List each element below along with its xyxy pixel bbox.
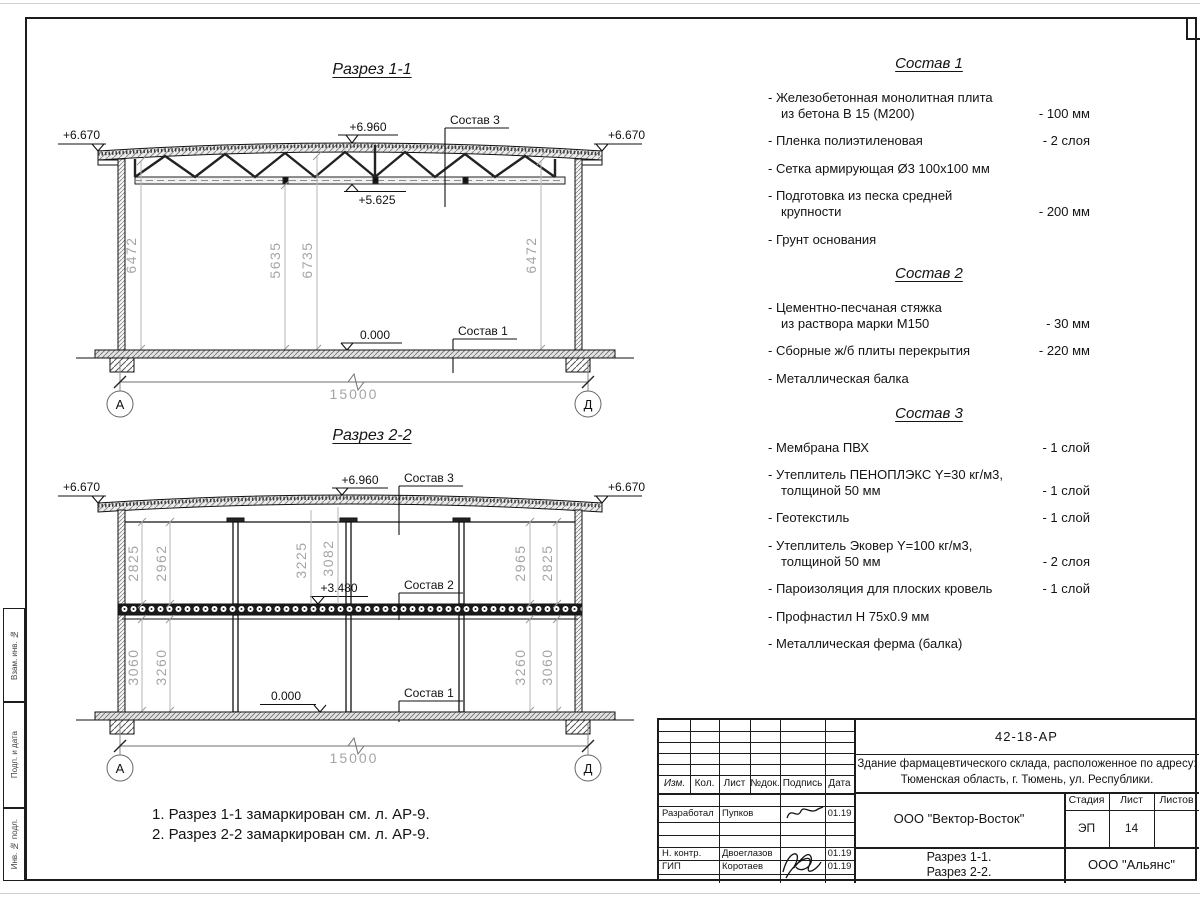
composition-item-text: - Металлическая ферма (балка) [768,636,962,652]
level-mark-icon [310,597,368,605]
composition-item: - Металлическая балка [768,371,1090,387]
composition-item: - Пароизоляция для плоских кровель - 1 с… [768,581,1090,597]
composition-item-value: - 100 мм [1039,106,1090,122]
truss-diagonals [135,152,555,177]
span-dimension: 15000 [114,722,594,766]
axis-bubble-left: А [116,761,125,776]
note-line: 1. Разрез 1-1 замаркирован см. л. АР-9. [152,805,430,825]
tb-document-number: 42-18-АР [854,720,1199,754]
callout-leader [445,128,509,207]
vertical-dimension-labels: 6472 5635 6735 6472 [123,236,539,278]
composition-lists: Состав 1 - Железобетонная монолитная пли… [768,55,1090,664]
composition-item-value: - 1 слой [1042,581,1090,597]
callout-mezzanine-composition: Состав 2 [404,578,454,592]
dim-upper-left-b: 2962 [153,544,169,581]
dim-upper-mid-a: 3225 [293,541,309,578]
callout-roof-composition: Состав 3 [450,113,500,127]
footing-right [566,720,590,734]
composition-item-text: - Мембрана ПВХ [768,440,869,456]
column-lower [346,615,351,712]
tb-sheets-label: Листов [1154,792,1199,810]
composition-item-text: - Профнастил Н 75х0.9 мм [768,609,929,625]
composition-title: Состав 3 [768,405,1090,422]
level-mark-icon [332,488,388,495]
composition-item: - Подготовка из песка средней крупности … [768,188,1090,219]
composition-items: - Мембрана ПВХ - 1 слой - Утеплитель ПЕН… [768,440,1090,652]
footing-right [566,358,590,372]
eave-bracket-right [580,160,602,165]
composition-item-text: - Утеплитель Эковер Y=100 кг/м3, толщино… [768,538,972,569]
composition-item: - Утеплитель Эковер Y=100 кг/м3, толщино… [768,538,1090,569]
footing-left [110,720,134,734]
dim-upper-mid-b: 3082 [320,539,336,576]
composition-item-value: - 1 слой [1042,440,1090,456]
dim-upper-right-a: 2965 [512,544,528,581]
notes: 1. Разрез 1-1 замаркирован см. л. АР-9.2… [152,805,430,846]
callout-leader [399,486,463,535]
composition-item-text: - Сборные ж/б плиты перекрытия [768,343,970,359]
composition-item-value: - 1 слой [1042,483,1090,499]
tb-sheet-title-line1: Разрез 1-1. [854,847,1064,866]
corner-reference-box [1186,19,1200,40]
tb-sheet-title-line2: Разрез 2-2. [854,865,1064,881]
span-dimension: 15000 [114,360,594,402]
tb-sheet-value: 14 [1109,810,1154,847]
eave-bracket-left [98,160,120,165]
composition-item-text: - Геотекстиль [768,510,854,526]
wall-right [575,159,582,350]
composition-item-text: - Железобетонная монолитная плита из бет… [768,90,993,121]
elevation-eave-right: +6.670 [608,128,645,142]
composition-item: - Мембрана ПВХ - 1 слой [768,440,1090,456]
composition-item-text: - Пароизоляция для плоских кровель [768,581,992,597]
elevation-ridge: +6.960 [349,120,386,134]
elevation-ridge: +6.960 [341,473,378,487]
composition-item-value: - 2 слоя [1043,133,1090,149]
callout-floor-composition: Состав 1 [404,686,454,700]
level-mark-icon [594,496,642,503]
composition-title: Состав 2 [768,265,1090,282]
floor-slab [95,712,615,720]
footing-left [110,358,134,372]
tb-customer-org: ООО "Альянс" [1064,847,1199,883]
title-block: Изм. Кол. Лист №док. Подпись Дата Разраб… [657,718,1197,881]
level-mark-icon [344,185,406,192]
level-mark-icon [58,496,106,503]
column-lower [233,615,238,712]
composition-title: Состав 1 [768,55,1090,72]
composition-item-text: - Цементно-песчаная стяжка из раствора м… [768,300,942,331]
margin-stamp-label: Подп. и дата [10,731,19,778]
mezzanine-slab [118,604,582,615]
tb-project-line2: Тюменская область, г. Тюмень, ул. Респуб… [857,772,1197,789]
callouts: Состав 3 Состав 2 Состав 1 [399,471,463,722]
dim-lower-right-a: 3260 [512,648,528,685]
elevation-mezzanine: +3.480 [320,581,357,595]
composition-item-value: - 220 мм [1039,343,1090,359]
margin-stamp-label: Инв. № подл. [10,819,19,869]
section-2-2-drawing: +6.670 +6.670 +6.960 +3.480 0.000 Состав… [30,423,670,793]
axis-bubble-right: Д [584,761,593,776]
margin-stamp-cell: Подп. и дата [3,702,25,808]
level-mark-icon [260,705,326,713]
drawing-sheet: { "side_stamp": { "cells": ["Взам. инв. … [0,0,1200,900]
composition-item-text: - Грунт основания [768,232,876,248]
level-mark-icon [338,135,398,143]
span-dimension-label: 15000 [330,750,379,766]
dim-lower-left-a: 3060 [125,648,141,685]
tb-stage-label: Стадия [1064,792,1109,810]
sheet-edge-top [0,3,1200,4]
composition-section-2: Состав 2 - Цементно-песчаная стяжка из р… [768,265,1090,386]
section-1-1-drawing: +6.670 +6.670 +6.960 +5.625 0.000 Состав… [30,55,670,425]
composition-section-3: Состав 3 - Мембрана ПВХ - 1 слой - Утепл… [768,405,1090,652]
signature-ncontrol-gip [783,854,821,878]
dim-wall-left: 6472 [123,236,139,273]
dim-wall-right: 6472 [523,236,539,273]
elevation-floor: 0.000 [360,328,390,342]
column-upper [233,522,238,604]
span-dimension-label: 15000 [330,386,379,402]
dim-floor-to-truss: 5635 [267,241,283,278]
column-upper [459,522,464,604]
composition-item: - Металлическая ферма (балка) [768,636,1090,652]
tb-project-line1: Здание фармацевтического склада, располо… [857,756,1197,773]
elevation-eave-right: +6.670 [608,480,645,494]
elevation-floor: 0.000 [271,689,301,703]
composition-item: - Пленка полиэтиленовая - 2 слоя [768,133,1090,149]
composition-item-text: - Металлическая балка [768,371,909,387]
dim-lower-right-b: 3060 [539,648,555,685]
composition-item-text: - Пленка полиэтиленовая [768,133,923,149]
margin-stamp-label: Взам. инв. № [10,630,19,680]
composition-item-value: - 30 мм [1046,316,1090,332]
composition-item: - Геотекстиль - 1 слой [768,510,1090,526]
composition-item: - Утеплитель ПЕНОПЛЭКС Y=30 кг/м3, толщи… [768,467,1090,498]
axis-bubble-right: Д [584,397,593,412]
elevation-eave-left: +6.670 [63,480,100,494]
composition-item-text: - Сетка армирующая Ø3 100х100 мм [768,161,990,177]
composition-items: - Цементно-песчаная стяжка из раствора м… [768,300,1090,386]
elevation-truss-bottom: +5.625 [358,193,395,207]
roof-band [98,495,602,512]
margin-stamp-cell: Инв. № подл. [3,808,25,881]
composition-item-value: - 1 слой [1042,510,1090,526]
level-mark-icon [341,343,402,350]
dim-lower-left-b: 3260 [153,648,169,685]
level-mark-icon [594,144,642,151]
composition-item: - Сборные ж/б плиты перекрытия - 220 мм [768,343,1090,359]
composition-item: - Профнастил Н 75х0.9 мм [768,609,1090,625]
sheet-edge-bottom [0,893,1200,894]
composition-item: - Цементно-песчаная стяжка из раствора м… [768,300,1090,331]
composition-item: - Железобетонная монолитная плита из бет… [768,90,1090,121]
tb-stage-value: ЭП [1064,810,1109,847]
dim-floor-to-roof: 6735 [299,241,315,278]
composition-item-text: - Утеплитель ПЕНОПЛЭКС Y=30 кг/м3, толщи… [768,467,1003,498]
composition-item-value: - 200 мм [1039,204,1090,220]
elevation-eave-left: +6.670 [63,128,100,142]
dim-upper-right-b: 2825 [539,544,555,581]
tb-sheet-label: Лист [1109,792,1154,810]
axis-bubble-left: А [116,397,125,412]
note-line: 2. Разрез 2-2 замаркирован см. л. АР-9. [152,825,430,845]
margin-stamp-cell: Взам. инв. № [3,608,25,702]
composition-item-text: - Подготовка из песка средней крупности [768,188,952,219]
column-lower [459,615,464,712]
dim-upper-left-a: 2825 [125,544,141,581]
composition-item-value: - 2 слоя [1043,554,1090,570]
composition-items: - Железобетонная монолитная плита из бет… [768,90,1090,247]
callout-floor-composition: Состав 1 [458,324,508,338]
floor-slab [95,350,615,358]
level-mark-icon [58,144,106,151]
composition-item: - Сетка армирующая Ø3 100х100 мм [768,161,1090,177]
tb-sheets-value [1154,810,1199,847]
tb-design-org: ООО "Вектор-Восток" [854,792,1064,847]
signature-developer [787,807,823,818]
composition-item: - Грунт основания [768,232,1090,248]
callout-roof-composition: Состав 3 [404,471,454,485]
composition-section-1: Состав 1 - Железобетонная монолитная пли… [768,55,1090,247]
